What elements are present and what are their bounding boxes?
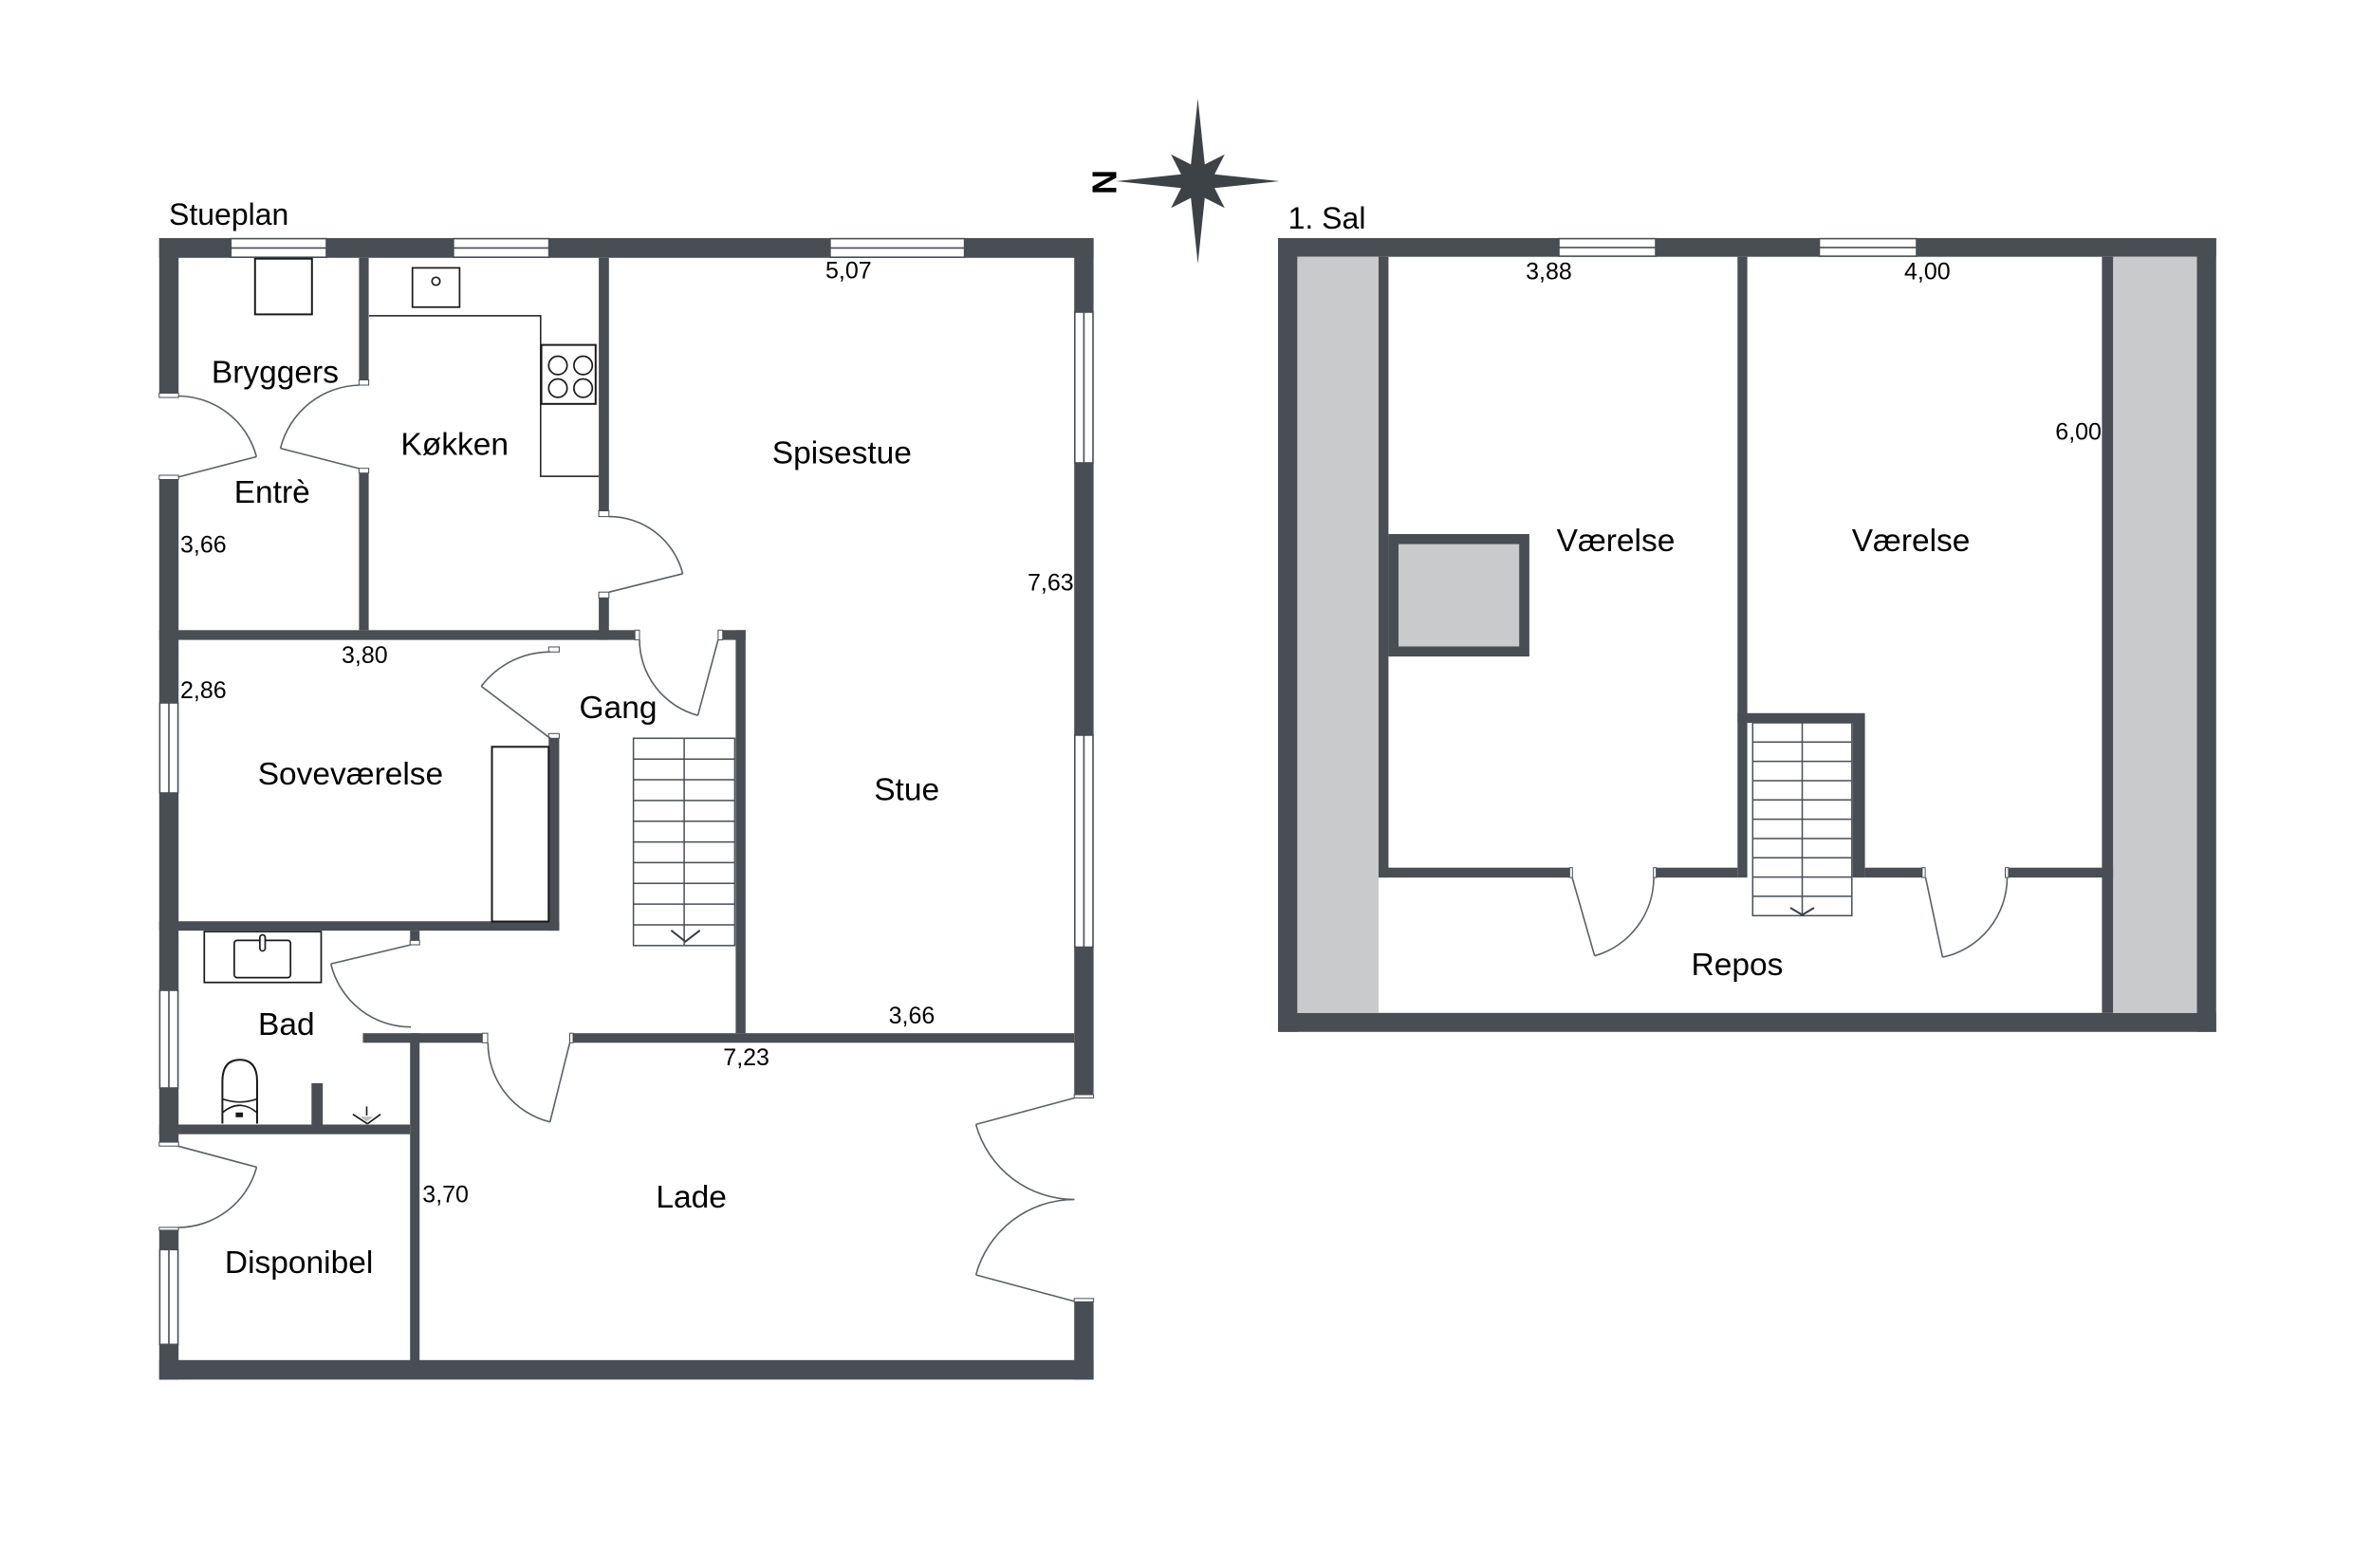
svg-text:Soveværelse: Soveværelse (258, 757, 444, 792)
svg-text:Spisestue: Spisestue (772, 436, 912, 471)
svg-text:6,00: 6,00 (2055, 419, 2102, 446)
svg-text:1. Sal: 1. Sal (1288, 201, 1366, 235)
svg-text:3,66: 3,66 (180, 531, 227, 558)
svg-text:Disponibel: Disponibel (225, 1245, 373, 1281)
svg-text:5,07: 5,07 (825, 258, 872, 285)
svg-text:Gang: Gang (580, 691, 658, 726)
svg-text:Køkken: Køkken (400, 427, 509, 462)
svg-text:7,23: 7,23 (723, 1044, 769, 1071)
svg-text:Bryggers: Bryggers (212, 356, 339, 391)
svg-text:Stueplan: Stueplan (169, 197, 288, 231)
svg-text:Værelse: Værelse (1557, 524, 1676, 559)
svg-text:Lade: Lade (656, 1180, 727, 1215)
svg-text:4,00: 4,00 (1904, 258, 1951, 285)
svg-text:3,66: 3,66 (889, 1003, 936, 1029)
svg-text:Repos: Repos (1692, 948, 1784, 983)
svg-text:Stue: Stue (874, 773, 939, 808)
svg-text:3,70: 3,70 (422, 1182, 469, 1208)
svg-text:3,80: 3,80 (342, 642, 388, 669)
svg-text:7,63: 7,63 (1028, 570, 1074, 597)
svg-text:N: N (1085, 170, 1124, 194)
svg-text:Bad: Bad (258, 1007, 315, 1042)
svg-text:3,88: 3,88 (1526, 258, 1572, 285)
svg-text:Entrè: Entrè (234, 475, 310, 510)
svg-text:Værelse: Værelse (1852, 524, 1971, 559)
svg-text:2,86: 2,86 (180, 677, 227, 704)
